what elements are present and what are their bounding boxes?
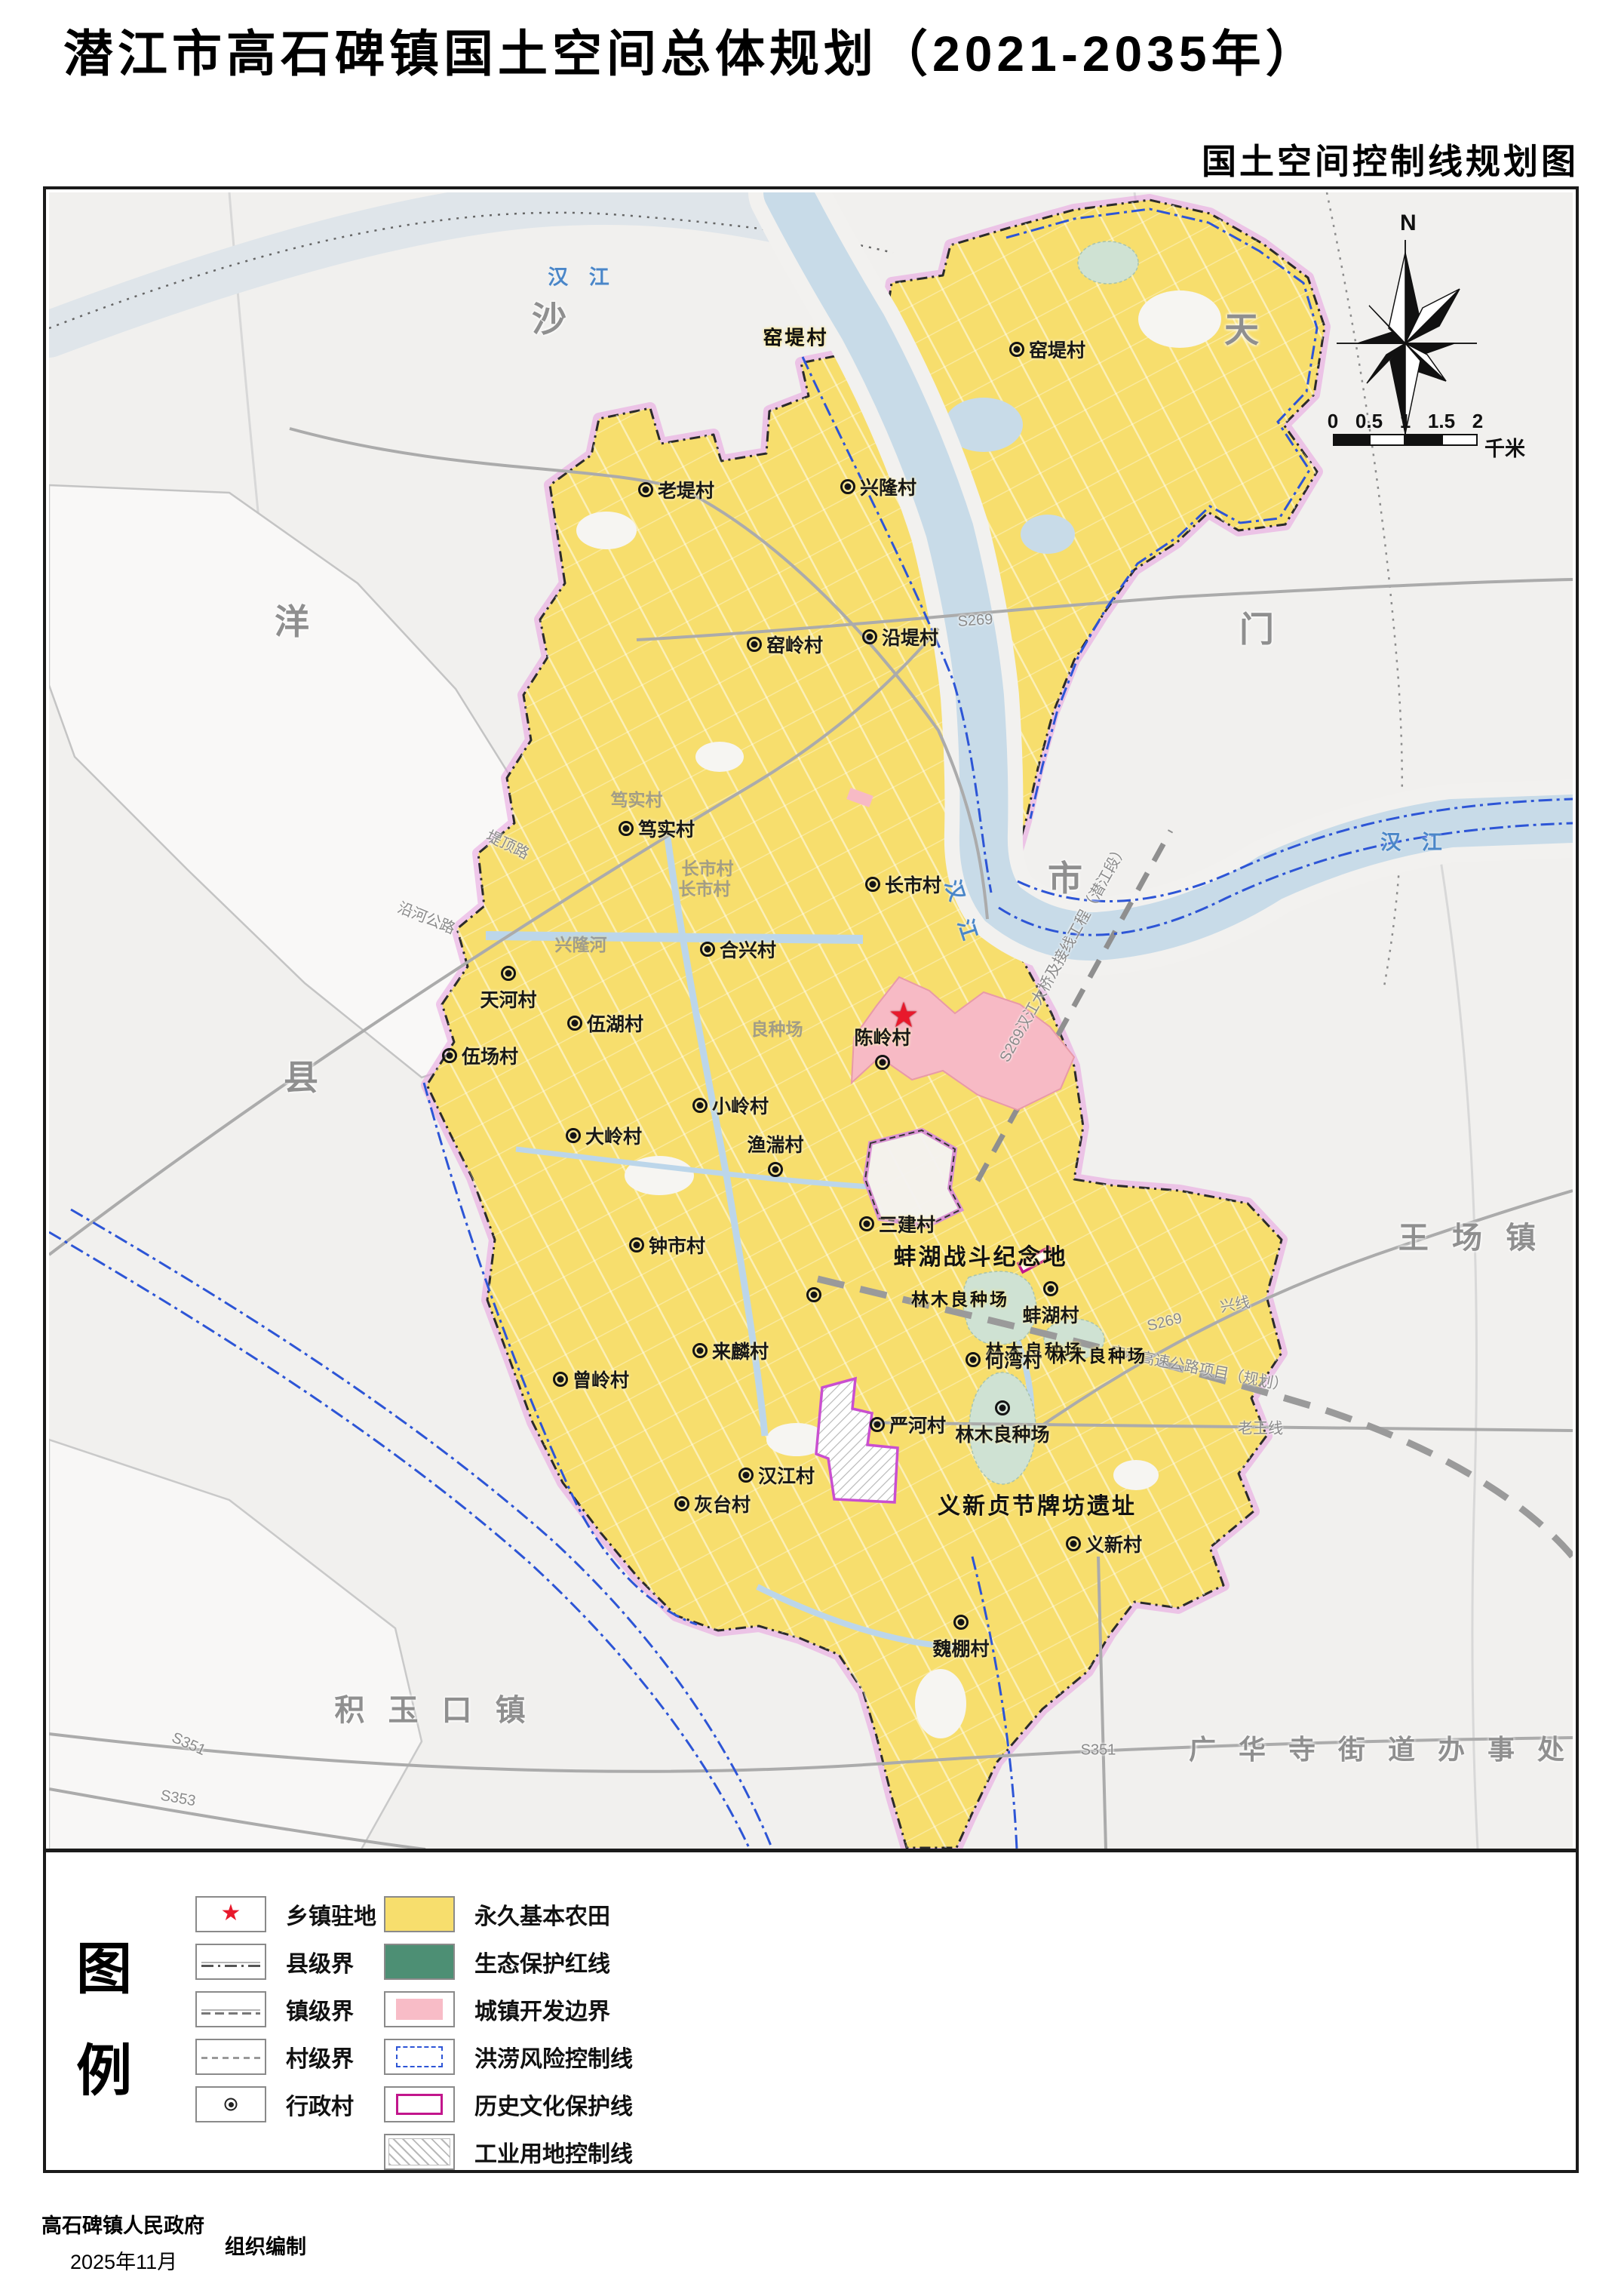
page-title: 潜江市高石碑镇国土空间总体规划（2021-2035年）	[63, 14, 1320, 86]
map-label-layer: 沙洋县天门市王 场 镇积 玉 口 镇广 华 寺 街 道 办 事 处汉 江汉 江汉…	[49, 192, 1573, 1849]
page-subtitle: 国土空间控制线规划图	[1202, 134, 1579, 184]
village-dot-icon	[225, 2098, 238, 2111]
township-seat-star: ★	[888, 997, 919, 1032]
road-label: 兴线	[1218, 1289, 1251, 1317]
village-dot	[768, 1162, 783, 1177]
legend-swatch	[384, 2039, 455, 2075]
village-label: 三建村	[879, 1210, 935, 1237]
legend-swatch	[195, 2039, 266, 2075]
village-dot	[567, 1016, 582, 1031]
county-line-icon	[201, 1962, 260, 1969]
village-label: 林木良种场	[955, 1420, 1049, 1447]
village-label: 兴隆村	[860, 473, 916, 500]
legend-swatch	[384, 1896, 455, 1932]
village-label: 来麟村	[712, 1337, 769, 1364]
site-label: 林木良种场	[1049, 1342, 1147, 1367]
village-dot	[862, 629, 877, 644]
legend-label: 永久基本农田	[474, 1898, 610, 1931]
region-label: 天	[1224, 303, 1266, 352]
village-label: 窑堤村	[1029, 336, 1085, 363]
legend-label: 县级界	[286, 1945, 354, 1978]
legend-label: 城镇开发边界	[474, 1993, 610, 2026]
region-label: 门	[1239, 602, 1282, 652]
village-dot	[501, 966, 516, 981]
village-label: 曾岭村	[573, 1366, 629, 1393]
faded-label: 长市村	[679, 874, 731, 900]
village-dot	[700, 942, 715, 957]
village-dot	[1043, 1281, 1058, 1296]
legend-swatch	[195, 2086, 266, 2122]
village-dot	[1009, 342, 1024, 357]
legend-swatch	[195, 1991, 266, 2027]
historic-line-icon	[396, 2094, 443, 2115]
village-dot	[674, 1496, 689, 1511]
faded-label: 良种场	[751, 1015, 803, 1040]
village-dot	[553, 1372, 568, 1387]
village-dot	[1066, 1536, 1081, 1551]
legend-label: 乡镇驻地	[286, 1898, 376, 1931]
village-label: 小岭村	[712, 1092, 769, 1119]
village-dot	[966, 1352, 981, 1367]
village-dot	[629, 1237, 644, 1253]
village-dot	[638, 482, 653, 497]
village-label: 蚌湖村	[1022, 1301, 1079, 1328]
village-dot	[875, 1055, 890, 1070]
site-label: 窑堤村	[763, 323, 828, 351]
legend-swatch	[384, 1944, 455, 1980]
village-label: 伍湖村	[587, 1010, 643, 1037]
township-seat-icon: ★	[221, 1900, 241, 1926]
village-label: 渔湍村	[747, 1130, 803, 1157]
village-dot	[692, 1098, 708, 1113]
village-dot	[619, 821, 634, 836]
village-dot	[738, 1468, 754, 1483]
village-label: 窑岭村	[766, 631, 823, 658]
region-label: 洋	[275, 595, 317, 644]
road-label: 老王线	[1238, 1416, 1283, 1438]
village-label: 合兴村	[720, 936, 776, 963]
page: 潜江市高石碑镇国土空间总体规划（2021-2035年） 国土空间控制线规划图	[0, 0, 1621, 2296]
town-line-icon	[201, 2009, 260, 2016]
village-label: 灰台村	[694, 1490, 751, 1517]
river-label: 汉 江	[548, 261, 617, 290]
region-label: 王 场 镇	[1398, 1213, 1543, 1257]
flood-line-icon	[396, 2046, 443, 2067]
legend-swatch	[384, 1991, 455, 2027]
legend-panel: 图 例 ★乡镇驻地县级界镇级界村级界行政村永久基本农田生态保护红线城镇开发边界洪…	[46, 1852, 1576, 2167]
region-label: 广 华 寺 街 道 办 事 处	[1189, 1728, 1572, 1767]
village-dot	[870, 1417, 885, 1432]
village-dot	[840, 479, 855, 494]
footer-agency: 高石碑镇人民政府	[41, 2209, 204, 2239]
site-label: 义新贞节牌坊遗址	[938, 1487, 1137, 1520]
village-dot	[865, 877, 880, 892]
village-dot	[692, 1343, 708, 1358]
legend-swatch	[384, 2086, 455, 2122]
village-label: 沿堤村	[882, 623, 938, 650]
faded-label: 兴隆河	[555, 930, 607, 956]
village-label: 魏棚村	[932, 1634, 989, 1661]
road-label: S269	[1146, 1310, 1184, 1335]
legend-swatch	[195, 1944, 266, 1980]
legend-label: 洪涝风险控制线	[474, 2040, 633, 2073]
village-label: 义新村	[1085, 1530, 1142, 1557]
village-label: 长市村	[885, 871, 941, 898]
river-label: 汉 江	[1380, 826, 1450, 856]
legend-label: 工业用地控制线	[474, 2135, 633, 2168]
river-label: 汉 江	[939, 875, 988, 950]
urban-boundary-icon	[396, 1999, 443, 2020]
footer-note: 组织编制	[225, 2230, 306, 2260]
village-label: 笃实村	[638, 815, 695, 842]
village-dot	[806, 1287, 821, 1302]
legend-swatch: ★	[195, 1896, 266, 1932]
legend-heading-2: 例	[76, 2026, 132, 2107]
village-label: 何湾村	[985, 1346, 1042, 1373]
legend-label: 村级界	[286, 2040, 354, 2073]
village-label: 汉江村	[758, 1462, 815, 1489]
faded-label: 笃实村	[611, 785, 663, 811]
road-label: S351	[1081, 1742, 1116, 1760]
site-label: 蚌湖战斗纪念地	[894, 1238, 1068, 1271]
legend-label: 镇级界	[286, 1993, 354, 2026]
legend-label: 历史文化保护线	[474, 2088, 633, 2121]
region-label: 积 玉 口 镇	[334, 1686, 533, 1729]
village-line-icon	[201, 2057, 260, 2059]
village-label: 老堤村	[658, 476, 714, 503]
village-label: 天河村	[480, 985, 536, 1013]
industrial-hatch-icon	[388, 2138, 450, 2165]
site-label: 林木良种场	[911, 1285, 1009, 1311]
legend-label: 行政村	[286, 2088, 354, 2121]
village-dot	[566, 1128, 581, 1143]
legend-label: 生态保护红线	[474, 1945, 610, 1978]
fill-swatch	[385, 1898, 453, 1931]
village-label: 钟市村	[649, 1231, 705, 1259]
village-label: 大岭村	[585, 1122, 642, 1149]
village-label: 伍场村	[462, 1042, 518, 1069]
village-dot	[995, 1400, 1010, 1415]
legend-swatch	[384, 2134, 455, 2170]
village-dot	[859, 1216, 874, 1231]
village-dot	[442, 1048, 457, 1063]
road-label: 堤顶路	[484, 824, 534, 863]
footer-date: 2025年11月	[70, 2245, 177, 2275]
road-label: S351	[169, 1729, 208, 1760]
legend-heading-1: 图	[76, 1924, 132, 2005]
map-canvas: N 00.511.52千米 沙洋县天门市王 场 镇积 玉 口 镇广 华 寺 街	[49, 192, 1573, 1849]
region-label: 沙	[532, 292, 574, 342]
fill-swatch	[385, 1945, 453, 1978]
road-label: 沿河公路	[395, 896, 459, 939]
village-label: 严河村	[889, 1411, 946, 1438]
road-label: S353	[159, 1787, 197, 1811]
village-dot	[747, 637, 762, 652]
region-label: 县	[284, 1050, 326, 1100]
village-dot	[953, 1615, 969, 1630]
road-label: S269	[957, 611, 993, 631]
